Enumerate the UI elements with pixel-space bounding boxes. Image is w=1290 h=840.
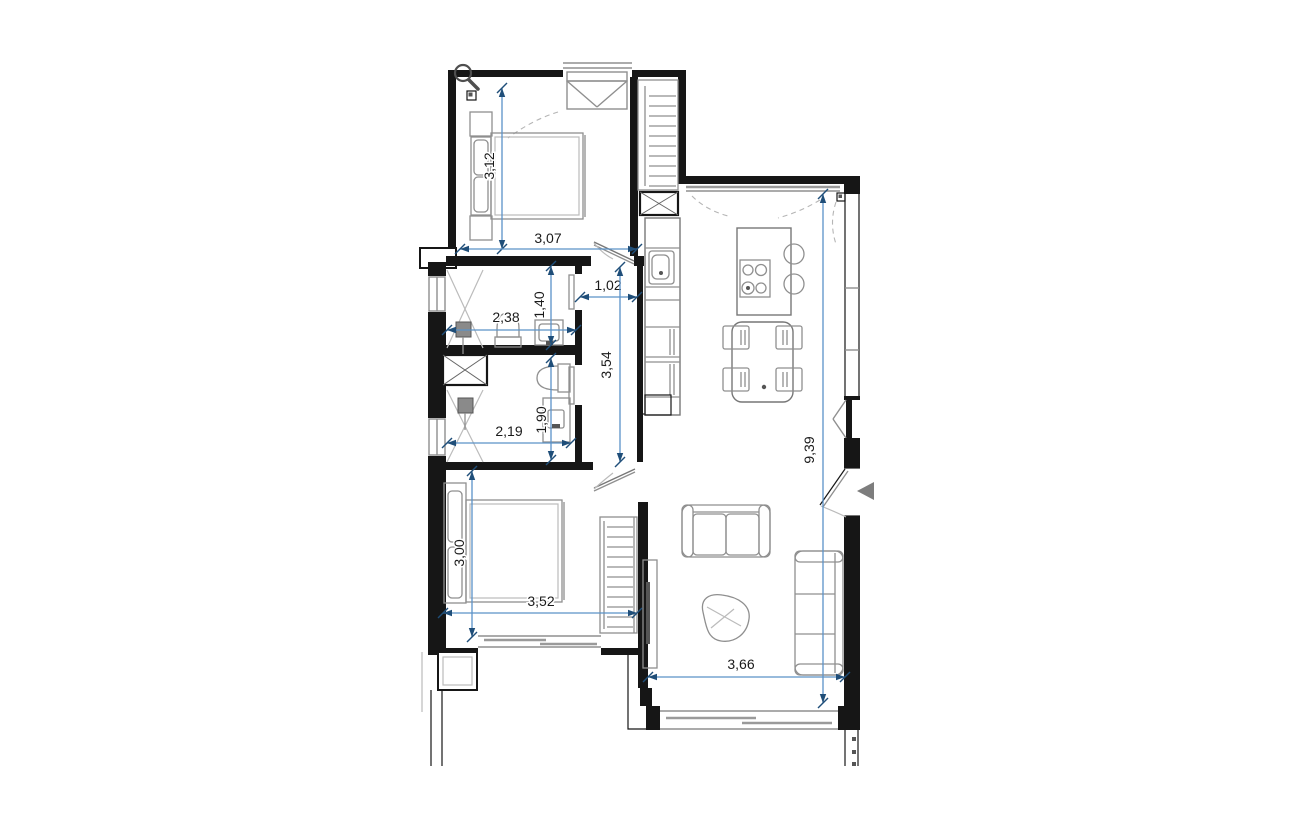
- shower: [447, 390, 483, 462]
- dining-table: [723, 322, 802, 402]
- wardrobe: [638, 80, 678, 190]
- wardrobe: [600, 517, 637, 633]
- curtain-dash: [692, 196, 728, 216]
- bedroom1-door: [594, 242, 634, 264]
- dimension-label: 3,00: [451, 539, 467, 566]
- shower: [447, 270, 483, 354]
- bedroom1-window: [563, 63, 632, 109]
- sink: [535, 320, 563, 345]
- dimension-hallway-width: 1,02: [575, 277, 642, 302]
- shaft-bathroom: [443, 355, 487, 385]
- dimension-bedroom1-width: 3,07: [455, 230, 642, 254]
- dimension-label: 3,12: [481, 152, 497, 179]
- dimension-label: 1,02: [594, 277, 621, 293]
- dimension-label: 1,90: [533, 406, 549, 433]
- dimension-bedroom2-depth: 3,00: [451, 466, 477, 642]
- dimension-label: 1,40: [531, 291, 547, 318]
- dimension-bathroom2-depth: 1,90: [533, 353, 556, 465]
- dimension-living-length: 9,39: [801, 189, 828, 708]
- dimension-label: 3,07: [534, 230, 561, 246]
- bathroom1-door-leaf: [569, 275, 574, 309]
- sofa: [682, 505, 770, 557]
- kitchen-counter: [645, 218, 680, 415]
- dimension-label: 9,39: [801, 436, 817, 463]
- curtain-dash: [778, 200, 820, 218]
- kitchen-island: [737, 228, 804, 315]
- dimension-label: 3,54: [598, 351, 614, 378]
- entrance-arrow-icon: [857, 482, 874, 500]
- balcony-door-leaf: [846, 400, 852, 438]
- bedroom2-door: [594, 469, 635, 491]
- curtain-dash: [833, 202, 837, 244]
- shaft-kitchen: [640, 192, 678, 215]
- living-room: [643, 505, 843, 675]
- exterior-pillar: [438, 652, 477, 690]
- dimension-label: 3,52: [527, 593, 554, 609]
- living-window: [660, 711, 838, 729]
- tv: [646, 582, 650, 644]
- floor-plan-canvas: 3,12 3,07 1,02 2,38 1,40 3,54 9,39 2,19: [0, 0, 1290, 840]
- coffee-table: [702, 595, 749, 642]
- entrance-door: [820, 469, 848, 517]
- dimension-label: 2,19: [495, 423, 522, 439]
- dimension-living-width: 3,66: [643, 656, 850, 682]
- kitchen: [645, 218, 804, 415]
- kitchen-window: [686, 187, 840, 191]
- second-sofa: [795, 551, 843, 675]
- bedroom-2: [444, 483, 637, 633]
- bedroom2-window: [478, 636, 601, 647]
- toilet: [537, 364, 570, 392]
- dimension-bedroom1-depth: 3,12: [481, 83, 507, 254]
- dimension-label: 2,38: [492, 309, 519, 325]
- curtain-dash: [508, 112, 558, 138]
- dimension-label: 3,66: [727, 656, 754, 672]
